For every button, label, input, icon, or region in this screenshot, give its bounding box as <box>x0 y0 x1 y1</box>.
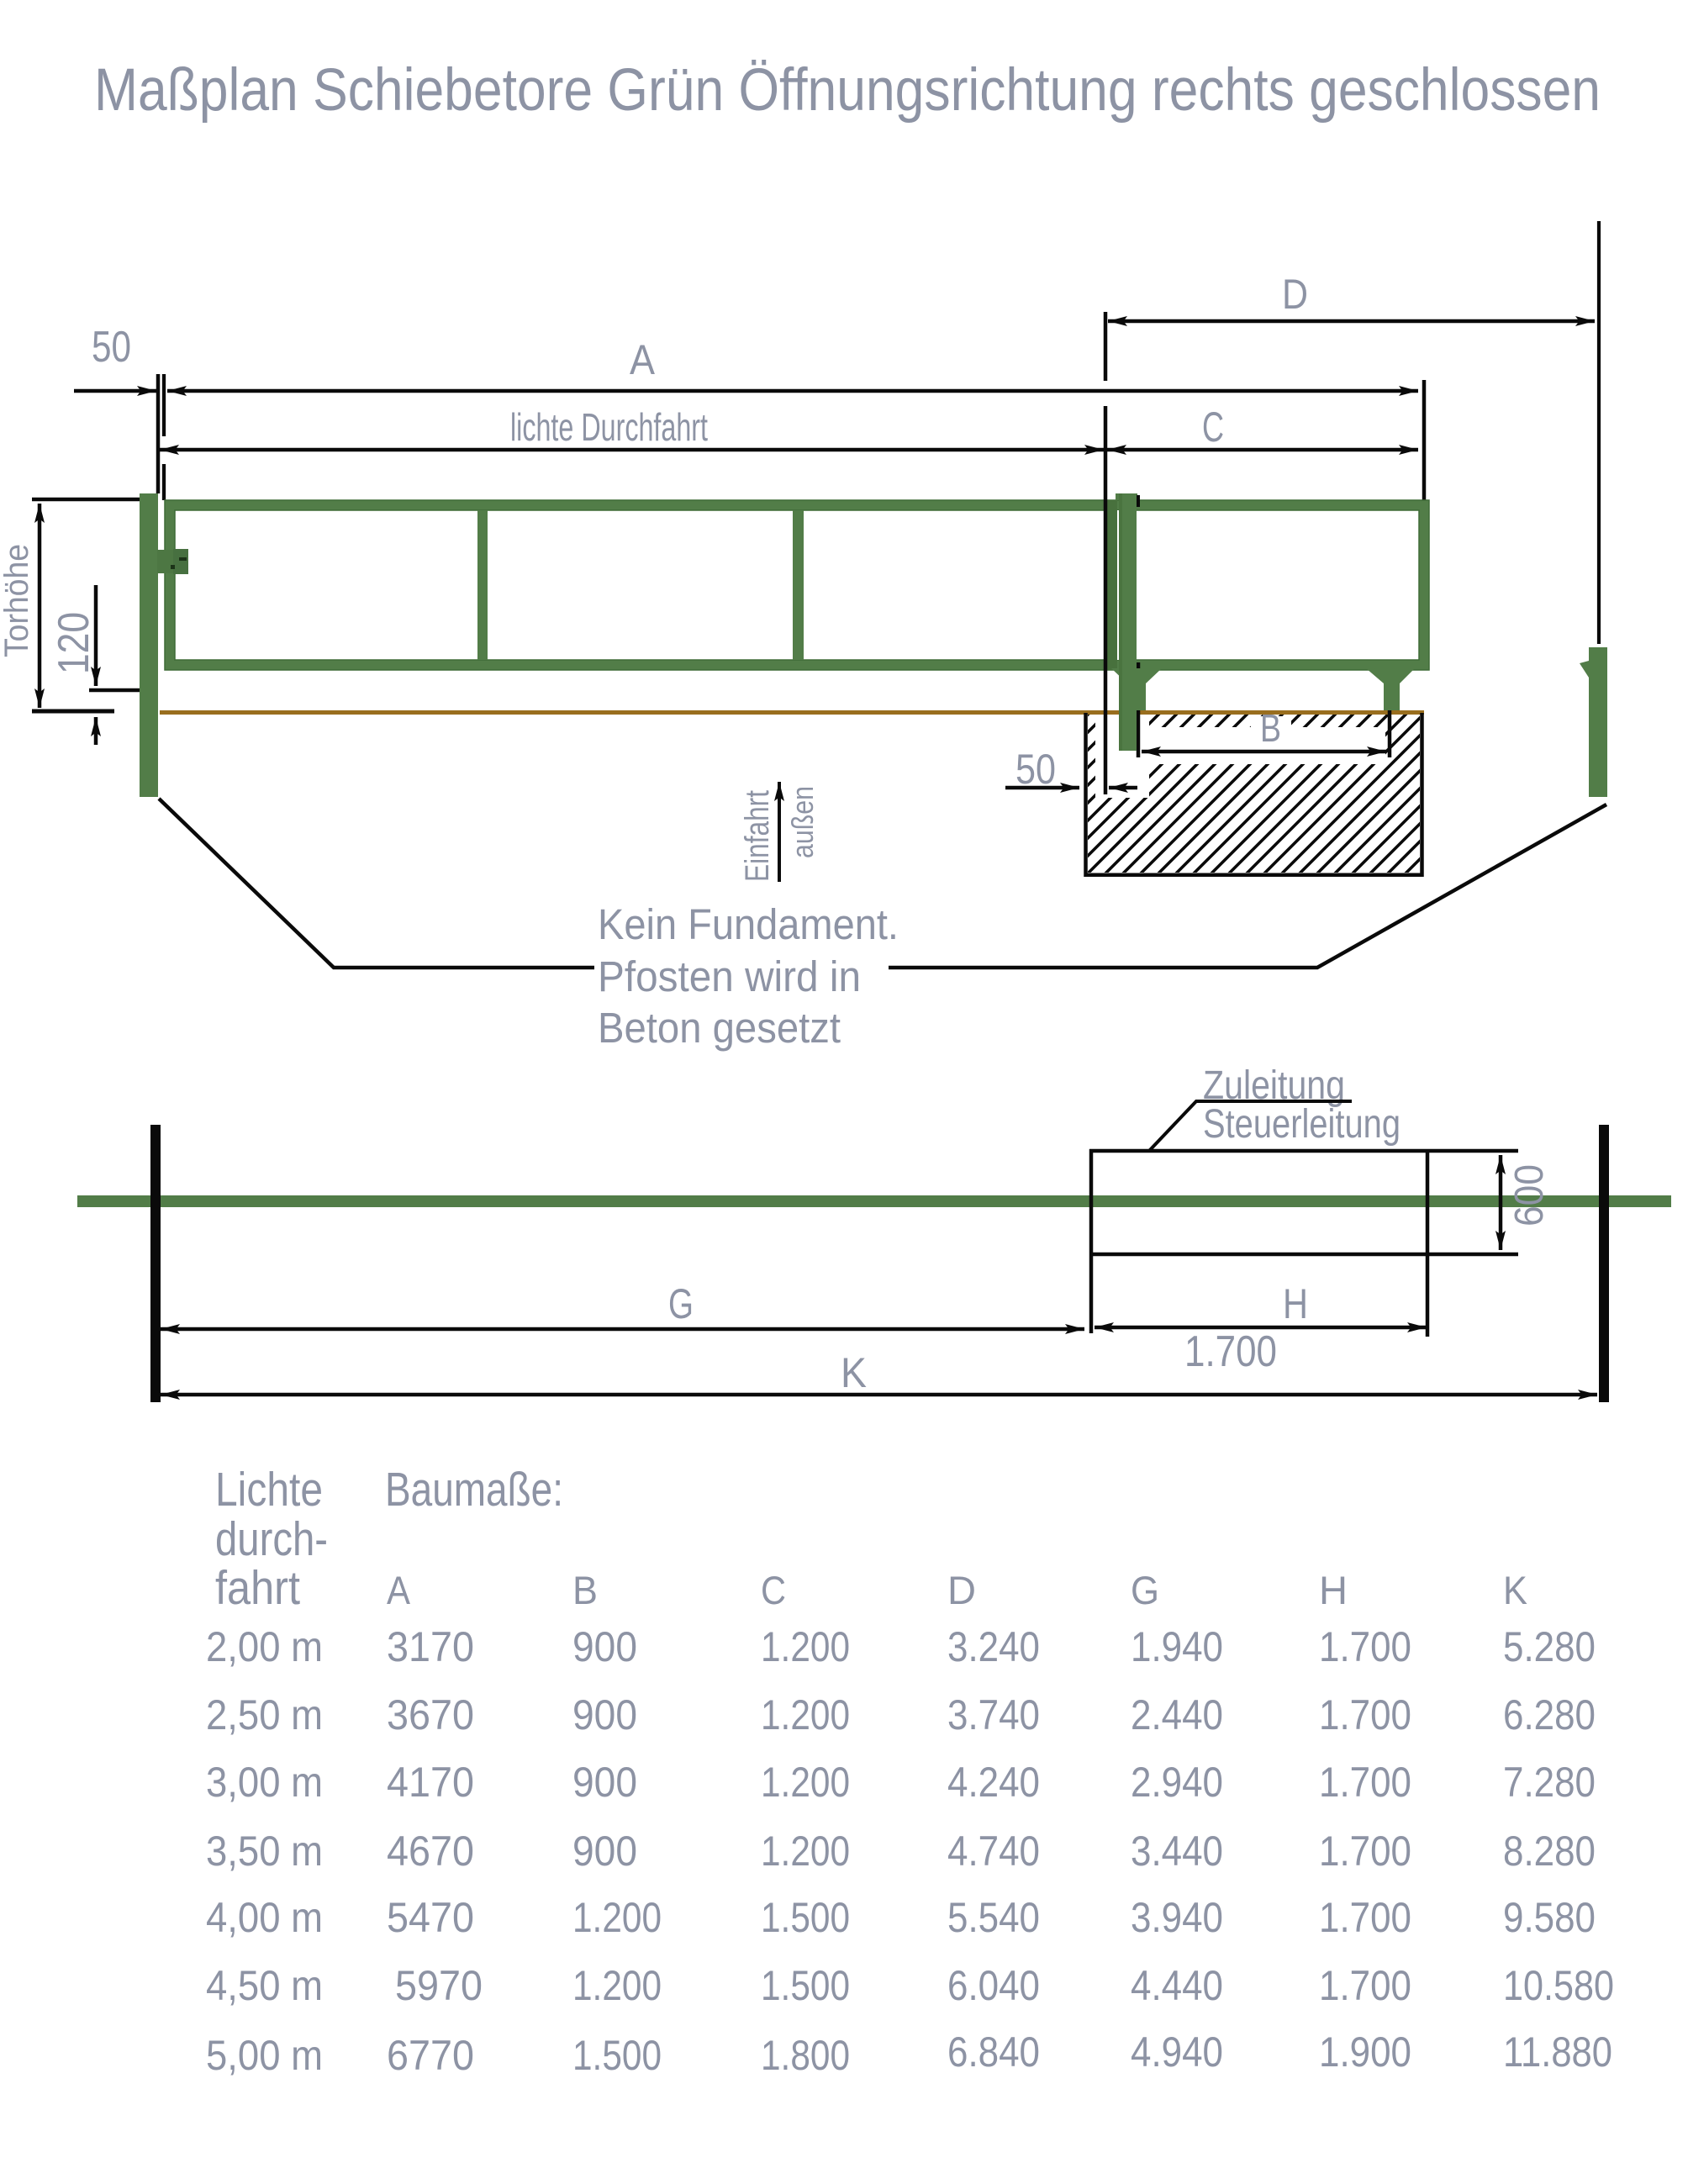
svg-text:Pfosten wird in: Pfosten wird in <box>598 952 861 1000</box>
svg-text:G: G <box>668 1280 694 1327</box>
svg-text:1.200: 1.200 <box>761 1828 850 1875</box>
svg-text:3170: 3170 <box>387 1623 474 1670</box>
svg-text:1.200: 1.200 <box>572 1962 662 2009</box>
svg-text:900: 900 <box>572 1691 637 1738</box>
svg-text:50: 50 <box>92 323 131 372</box>
svg-text:K: K <box>841 1349 867 1396</box>
svg-text:2.940: 2.940 <box>1131 1759 1223 1806</box>
svg-text:2.440: 2.440 <box>1131 1691 1223 1738</box>
svg-text:4.740: 4.740 <box>947 1828 1040 1875</box>
svg-text:2,50 m: 2,50 m <box>206 1691 323 1738</box>
svg-text:6770: 6770 <box>387 2032 474 2079</box>
svg-text:A: A <box>387 1568 411 1612</box>
svg-text:Lichte: Lichte <box>215 1463 323 1517</box>
svg-text:900: 900 <box>572 1623 637 1670</box>
svg-text:6.280: 6.280 <box>1503 1691 1596 1738</box>
svg-text:C: C <box>1202 404 1224 451</box>
svg-text:A: A <box>630 336 656 383</box>
svg-text:3.440: 3.440 <box>1131 1828 1223 1875</box>
svg-text:4.240: 4.240 <box>947 1759 1040 1806</box>
svg-text:B: B <box>1260 706 1281 750</box>
svg-text:1.800: 1.800 <box>761 2032 850 2079</box>
svg-text:1.200: 1.200 <box>572 1894 662 1941</box>
svg-text:1.900: 1.900 <box>1319 2028 1411 2076</box>
svg-text:1.500: 1.500 <box>761 1962 850 2009</box>
svg-text:lichte Durchfahrt: lichte Durchfahrt <box>510 405 708 449</box>
svg-text:4,50 m: 4,50 m <box>206 1962 323 2009</box>
svg-text:11.880: 11.880 <box>1503 2028 1612 2076</box>
svg-text:1.940: 1.940 <box>1131 1623 1223 1670</box>
svg-text:600: 600 <box>1507 1164 1552 1227</box>
svg-text:Torhöhe: Torhöhe <box>0 544 35 657</box>
svg-text:5.540: 5.540 <box>947 1894 1040 1941</box>
svg-text:8.280: 8.280 <box>1503 1828 1596 1875</box>
svg-text:4170: 4170 <box>387 1759 474 1806</box>
svg-text:1.700: 1.700 <box>1319 1691 1411 1738</box>
svg-text:1.200: 1.200 <box>761 1759 850 1806</box>
svg-text:50: 50 <box>1015 746 1056 793</box>
svg-text:10.580: 10.580 <box>1503 1962 1614 2009</box>
svg-text:900: 900 <box>572 1759 637 1806</box>
svg-text:Beton gesetzt: Beton gesetzt <box>598 1004 841 1052</box>
svg-text:1.700: 1.700 <box>1319 1828 1411 1875</box>
svg-text:D: D <box>1282 271 1308 318</box>
svg-text:1.700: 1.700 <box>1184 1327 1277 1376</box>
svg-text:1.700: 1.700 <box>1319 1623 1411 1670</box>
svg-text:1.700: 1.700 <box>1319 1759 1411 1806</box>
svg-text:3,00 m: 3,00 m <box>206 1759 323 1806</box>
svg-text:6.840: 6.840 <box>947 2028 1040 2076</box>
svg-text:H: H <box>1283 1280 1308 1327</box>
svg-text:3.740: 3.740 <box>947 1691 1040 1738</box>
svg-text:Baumaße:: Baumaße: <box>385 1463 563 1517</box>
svg-text:1.500: 1.500 <box>761 1894 850 1941</box>
svg-text:4.440: 4.440 <box>1131 1962 1223 2009</box>
svg-text:Kein Fundament.: Kein Fundament. <box>598 900 899 948</box>
svg-text:Einfahrt: Einfahrt <box>739 790 776 882</box>
svg-text:D: D <box>947 1568 976 1612</box>
svg-text:3670: 3670 <box>387 1691 474 1738</box>
svg-text:2,00 m: 2,00 m <box>206 1623 323 1670</box>
svg-text:5.280: 5.280 <box>1503 1623 1596 1670</box>
svg-text:1.700: 1.700 <box>1319 1962 1411 2009</box>
svg-text:7.280: 7.280 <box>1503 1759 1596 1806</box>
svg-text:5470: 5470 <box>387 1894 474 1941</box>
svg-text:3.240: 3.240 <box>947 1623 1040 1670</box>
svg-text:3.940: 3.940 <box>1131 1894 1223 1941</box>
svg-text:K: K <box>1503 1568 1527 1612</box>
svg-text:900: 900 <box>572 1828 637 1875</box>
svg-text:3,50 m: 3,50 m <box>206 1828 323 1875</box>
svg-text:1.700: 1.700 <box>1319 1894 1411 1941</box>
svg-text:4.940: 4.940 <box>1131 2028 1223 2076</box>
svg-text:B: B <box>572 1568 598 1612</box>
svg-text:4670: 4670 <box>387 1828 474 1875</box>
svg-text:5,00 m: 5,00 m <box>206 2032 323 2079</box>
svg-text:durch-: durch- <box>215 1512 328 1566</box>
svg-text:6.040: 6.040 <box>947 1962 1040 2009</box>
svg-text:H: H <box>1319 1568 1348 1612</box>
svg-text:1.500: 1.500 <box>572 2032 662 2079</box>
svg-text:1.200: 1.200 <box>761 1623 850 1670</box>
svg-text:1.200: 1.200 <box>761 1691 850 1738</box>
svg-text:9.580: 9.580 <box>1503 1894 1596 1941</box>
svg-text:120: 120 <box>50 612 98 674</box>
svg-text:G: G <box>1131 1568 1159 1612</box>
svg-text:Maßplan Schiebetore Grün Öffnu: Maßplan Schiebetore Grün Öffnungsrichtun… <box>94 57 1601 124</box>
svg-text:fahrt: fahrt <box>215 1561 300 1615</box>
svg-text:außen: außen <box>785 786 820 858</box>
svg-text:C: C <box>761 1568 786 1612</box>
svg-text:5970: 5970 <box>395 1962 483 2009</box>
svg-text:Steuerleitung: Steuerleitung <box>1203 1102 1401 1147</box>
svg-text:4,00 m: 4,00 m <box>206 1894 323 1941</box>
